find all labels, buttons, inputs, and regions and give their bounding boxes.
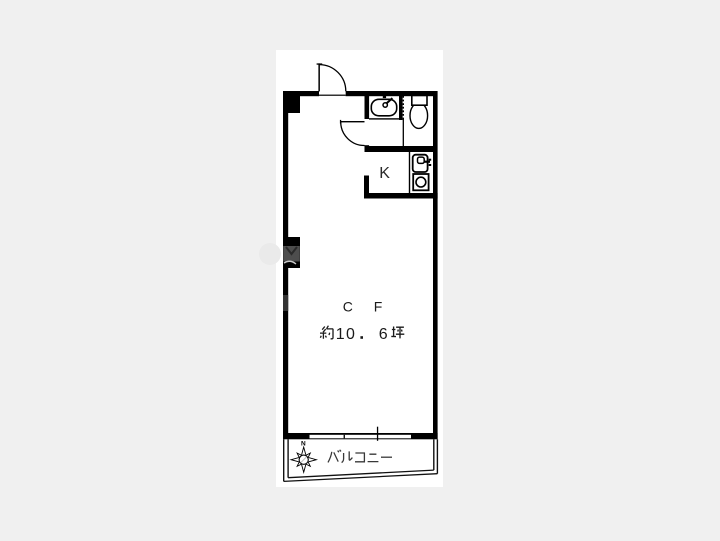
svg-text:6: 6 [379, 326, 388, 343]
svg-text:C: C [343, 298, 353, 314]
svg-text:K: K [379, 165, 390, 182]
svg-text:N: N [301, 441, 306, 448]
svg-text:F: F [374, 298, 383, 314]
svg-text:0: 0 [346, 326, 355, 343]
svg-text:1: 1 [336, 326, 345, 343]
